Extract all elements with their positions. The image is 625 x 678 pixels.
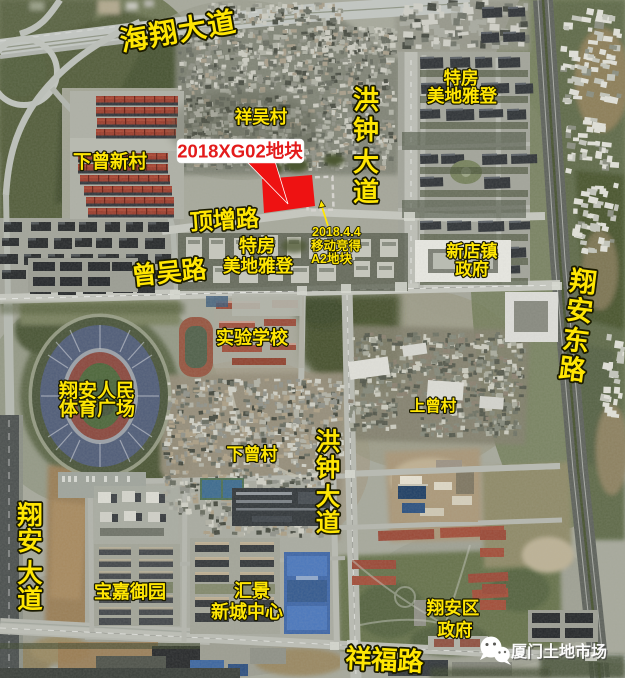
svg-text:体育广场: 体育广场 xyxy=(59,397,135,420)
svg-text:新城中心: 新城中心 xyxy=(211,601,283,622)
svg-text:2018XG02地块: 2018XG02地块 xyxy=(177,141,303,162)
svg-text:政府: 政府 xyxy=(455,259,489,279)
svg-text:特房: 特房 xyxy=(239,235,275,256)
svg-text:下曾新村: 下曾新村 xyxy=(73,151,148,172)
svg-text:移动竞得: 移动竞得 xyxy=(311,238,362,253)
svg-text:汇景: 汇景 xyxy=(234,581,270,601)
svg-text:美地雅登: 美地雅登 xyxy=(427,86,497,106)
svg-text:大: 大 xyxy=(353,147,379,177)
svg-text:实验学校: 实验学校 xyxy=(216,327,289,348)
svg-text:钟: 钟 xyxy=(316,454,341,482)
svg-text:翔: 翔 xyxy=(16,502,43,530)
svg-text:新店镇: 新店镇 xyxy=(447,241,498,261)
svg-text:A2地块: A2地块 xyxy=(311,251,352,266)
svg-text:翔安区: 翔安区 xyxy=(426,598,480,618)
svg-text:美地雅登: 美地雅登 xyxy=(223,256,293,276)
svg-text:洪: 洪 xyxy=(353,85,379,115)
svg-text:政府: 政府 xyxy=(438,620,473,640)
svg-text:安: 安 xyxy=(564,295,594,328)
svg-text:道: 道 xyxy=(353,177,379,207)
svg-text:祥福路: 祥福路 xyxy=(345,643,425,677)
svg-text:大: 大 xyxy=(17,560,43,588)
svg-text:厦门土地市场: 厦门土地市场 xyxy=(511,642,607,661)
svg-text:路: 路 xyxy=(557,352,589,386)
svg-text:东: 东 xyxy=(561,323,592,357)
svg-text:宝嘉御园: 宝嘉御园 xyxy=(94,581,166,602)
svg-text:道: 道 xyxy=(17,585,43,614)
svg-text:祥吴村: 祥吴村 xyxy=(235,107,288,127)
svg-text:顶增路: 顶增路 xyxy=(189,205,261,236)
svg-text:洪: 洪 xyxy=(316,428,341,456)
svg-text:翔: 翔 xyxy=(568,266,598,299)
svg-text:安: 安 xyxy=(17,527,43,556)
svg-text:道: 道 xyxy=(316,508,341,537)
svg-text:大: 大 xyxy=(316,483,341,511)
svg-text:下曾村: 下曾村 xyxy=(227,444,278,464)
svg-text:钟: 钟 xyxy=(353,115,379,145)
svg-text:2018.4.4: 2018.4.4 xyxy=(312,225,361,239)
svg-text:上曾村: 上曾村 xyxy=(410,396,457,415)
svg-text:特房: 特房 xyxy=(444,68,479,88)
